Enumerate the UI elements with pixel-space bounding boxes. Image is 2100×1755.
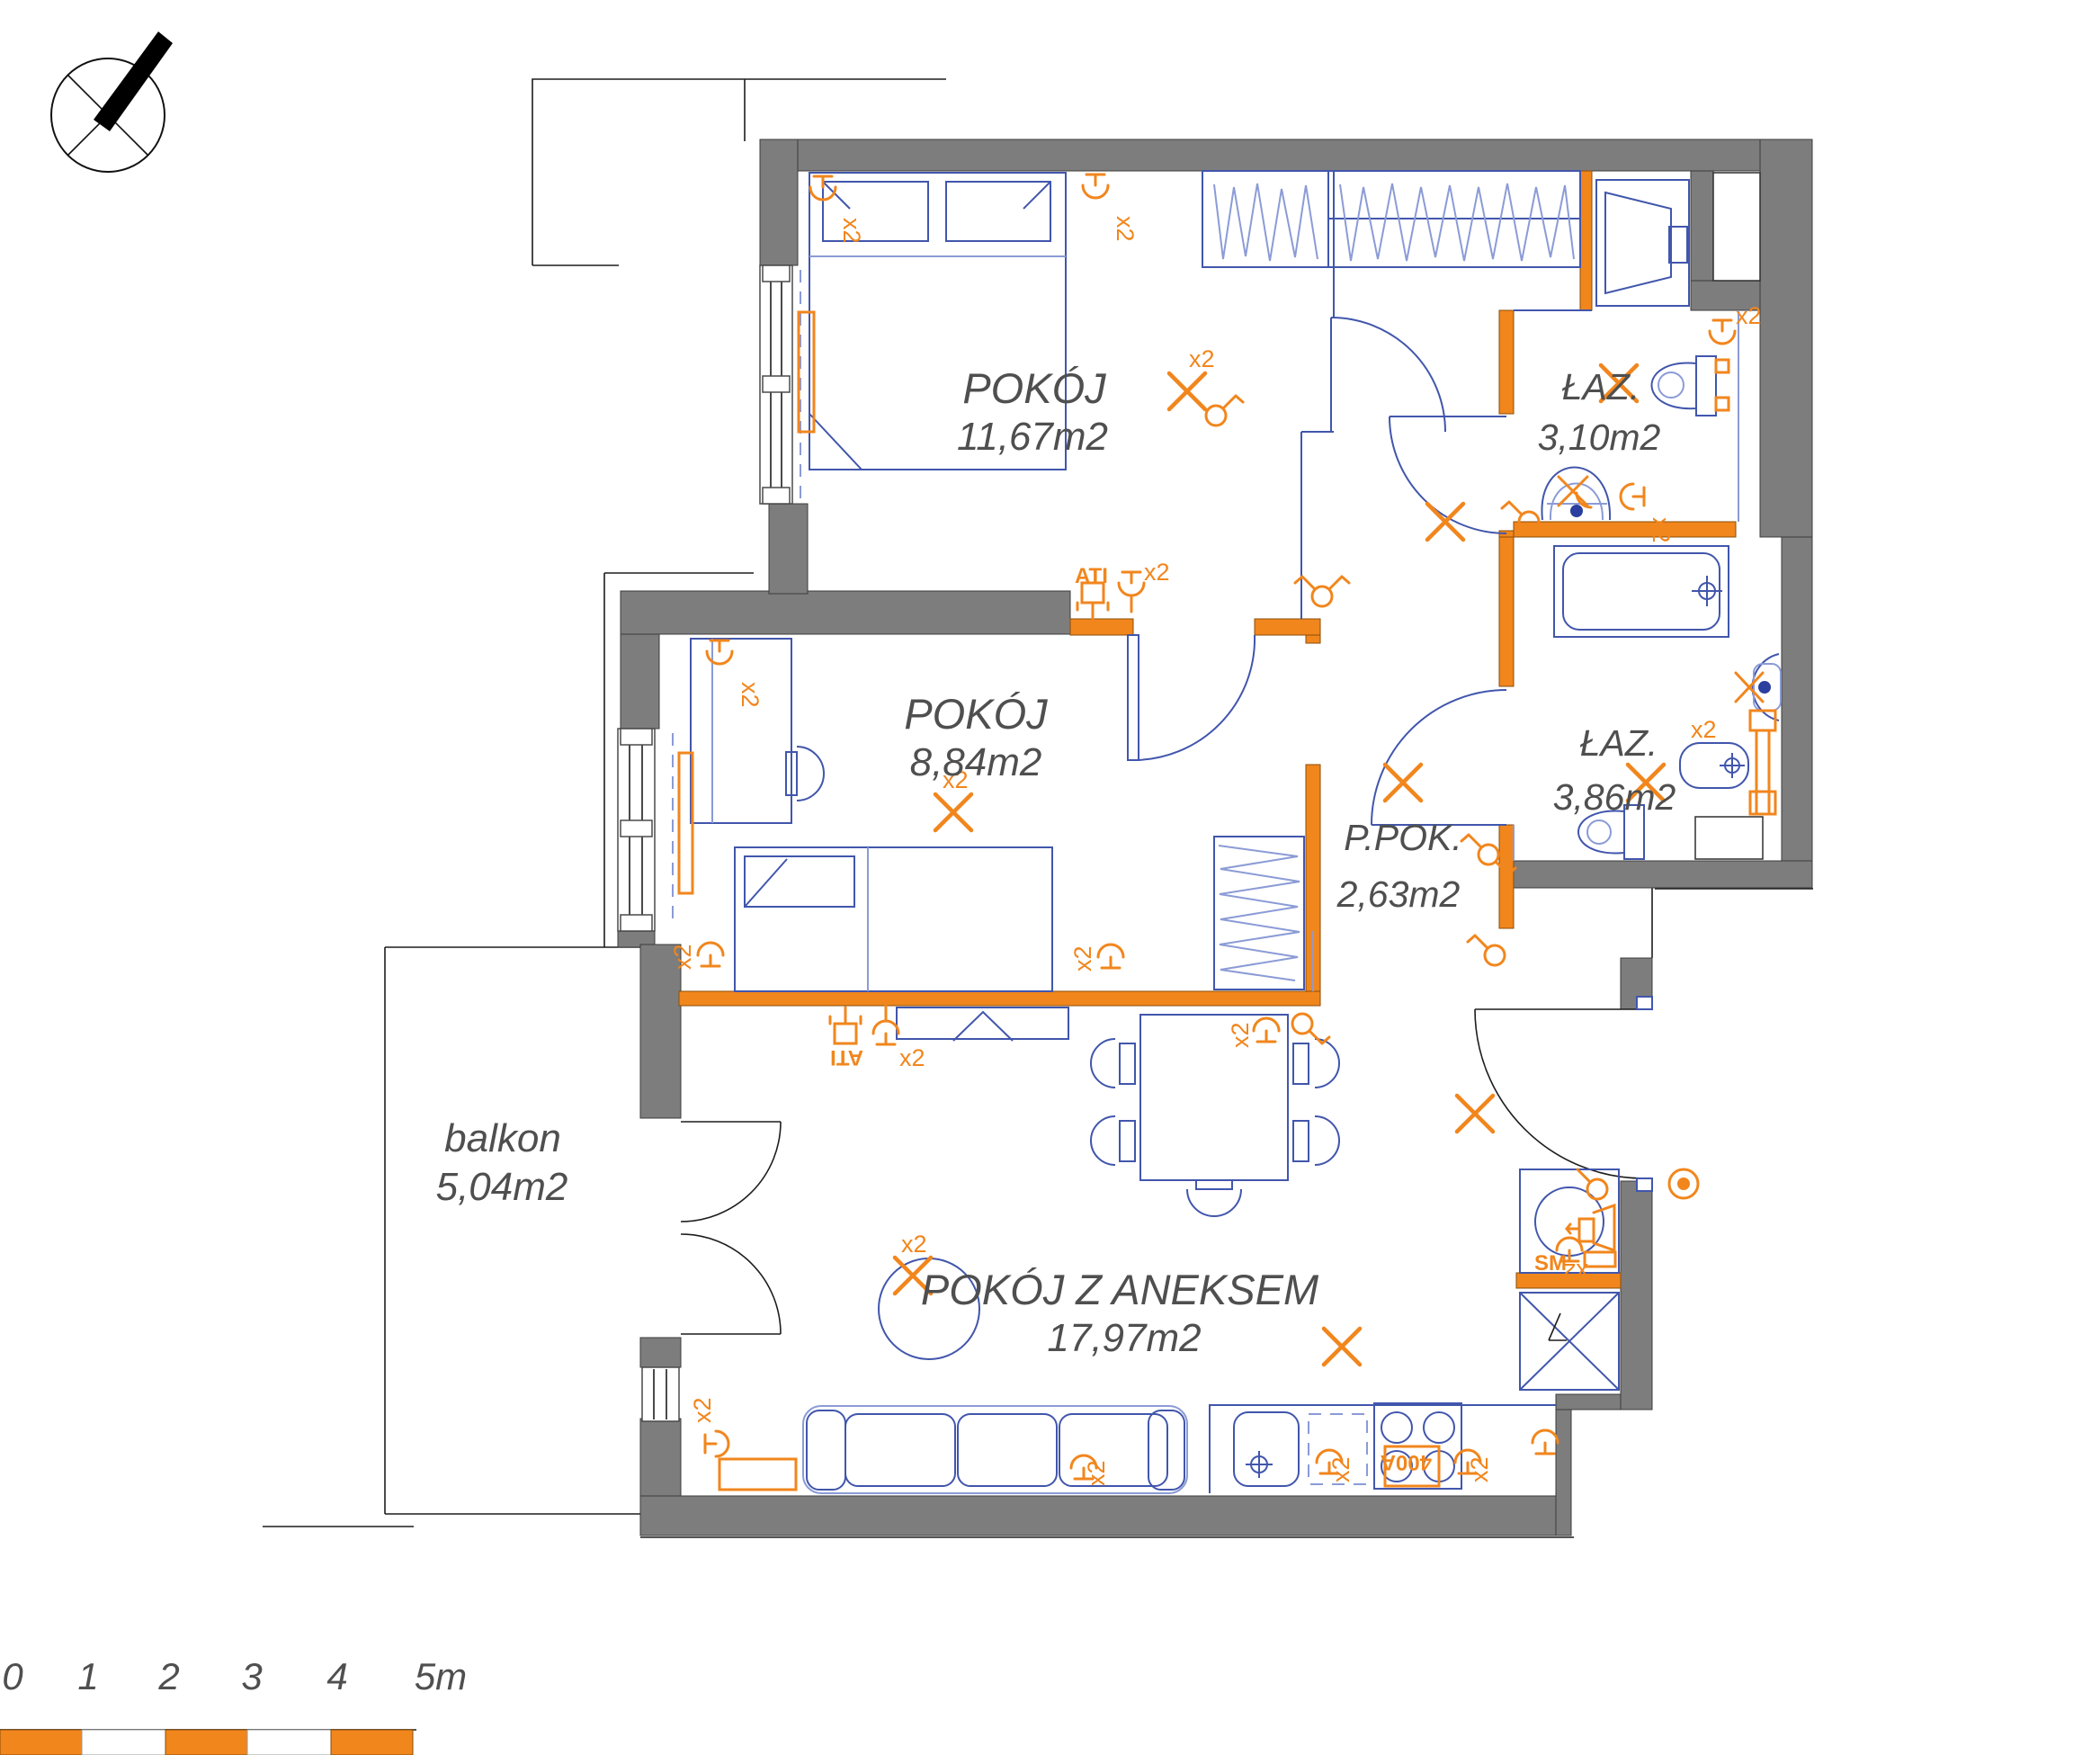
chair xyxy=(1293,1039,1339,1088)
pwall-room2-south xyxy=(679,991,1320,1006)
chair xyxy=(1091,1039,1135,1088)
x2-label: x2 xyxy=(1189,345,1215,372)
wall-lamp xyxy=(1710,320,1735,344)
x2-label: x2 xyxy=(901,1231,927,1258)
x2-label: x2 xyxy=(1227,1022,1254,1048)
wall-bottom xyxy=(640,1496,1571,1536)
tv-cabinet xyxy=(897,1007,1068,1041)
room-label-balkon-area: 5,04m2 xyxy=(436,1165,568,1209)
wall-lamp xyxy=(698,943,723,966)
switch xyxy=(1295,577,1349,606)
scale-label-2: 2 xyxy=(157,1655,179,1697)
window-room1-west xyxy=(760,265,800,504)
wall-lamp xyxy=(705,1431,728,1456)
bathtub xyxy=(1554,546,1729,637)
scale-label-1: 1 xyxy=(77,1655,98,1697)
x2-label: x2 xyxy=(737,682,764,708)
x2-label: x2 xyxy=(669,944,696,970)
pwall-bath-divider xyxy=(1514,522,1736,537)
ceiling-light xyxy=(1169,373,1205,409)
bidet-bath2 xyxy=(1680,743,1748,788)
windows xyxy=(618,265,800,1421)
socket xyxy=(1533,1430,1558,1454)
floor-plan-drawing: x2 x2 x2 x2 x2 x2 x2 x2 x2 x2 x2 x2 x2 x… xyxy=(0,0,2100,1755)
switch xyxy=(1292,1014,1329,1043)
room-label-balkon-name: balkon xyxy=(444,1116,561,1160)
wall-living-west-mid xyxy=(640,1338,681,1367)
room-label-pokoj1-area: 11,67m2 xyxy=(957,415,1108,459)
x2-label: x2 xyxy=(1083,1460,1110,1486)
north-needle xyxy=(94,31,173,131)
ceiling-light xyxy=(1457,1096,1493,1132)
radiator-living xyxy=(719,1459,796,1490)
wardrobe-hall xyxy=(1214,837,1304,989)
room-label-living-name: POKÓJ Z ANEKSEM xyxy=(921,1266,1319,1313)
wall-lamp xyxy=(1254,1018,1279,1042)
wardrobe-corridor xyxy=(1328,171,1580,267)
wall-pier-west1 xyxy=(769,504,808,594)
wall-se-step-v xyxy=(1556,1394,1571,1536)
chair xyxy=(1187,1180,1241,1216)
room-label-ppok-area: 2,63m2 xyxy=(1336,873,1461,915)
door-entrance xyxy=(1475,997,1652,1191)
x2-label: x2 xyxy=(1648,517,1675,543)
switch xyxy=(1468,936,1505,965)
door-room2 xyxy=(1128,635,1255,760)
wall-pier-west2 xyxy=(621,634,659,729)
pwall-room2-east-top xyxy=(1306,635,1320,643)
fridge xyxy=(1520,1293,1619,1390)
ati-label: ATI xyxy=(1075,564,1108,588)
room-label-laz2-name: ŁAZ. xyxy=(1580,722,1658,764)
walls-partition xyxy=(679,171,1736,1288)
x2-label: x2 xyxy=(689,1397,716,1423)
x2-label: x2 xyxy=(899,1044,925,1071)
x2-label: x2 xyxy=(1691,716,1717,743)
socket xyxy=(873,1005,898,1044)
room-label-ppok-name: P.POK. xyxy=(1344,817,1461,858)
room-label-laz1-name: ŁAZ. xyxy=(1562,366,1640,407)
socket xyxy=(1119,572,1144,612)
scale-seg-white xyxy=(247,1730,331,1755)
window-room2-west xyxy=(618,729,673,931)
ceiling-light xyxy=(1324,1329,1360,1365)
toilet-bath1 xyxy=(1652,356,1729,416)
ceiling-light xyxy=(1385,765,1421,801)
pwall-bath2-west-a xyxy=(1499,537,1514,686)
pwall-bath1-west xyxy=(1499,310,1514,414)
wall-lamp xyxy=(1621,484,1644,509)
room-label-pokoj2-name: POKÓJ xyxy=(904,690,1048,738)
x2-label: x2 xyxy=(1327,1456,1354,1482)
svg-text:400A: 400A xyxy=(1381,1450,1432,1474)
desk-room2 xyxy=(691,639,824,823)
scale-seg-white xyxy=(82,1730,165,1755)
ceiling-light xyxy=(935,794,971,830)
floor-plan-page: x2 x2 x2 x2 x2 x2 x2 x2 x2 x2 x2 x2 x2 x… xyxy=(0,0,2100,1755)
sm-indicator xyxy=(1585,1252,1615,1267)
x2-label: x2 xyxy=(1466,1456,1493,1482)
scale-seg-orange xyxy=(0,1730,82,1755)
pwall-bath1-stub xyxy=(1580,171,1592,310)
wall-right-mid xyxy=(1782,537,1812,888)
scale-seg-orange xyxy=(165,1730,247,1755)
wall-top xyxy=(760,139,1812,171)
x2-label: x2 xyxy=(1736,302,1762,329)
x2-label: x2 xyxy=(838,218,865,244)
wall-bath2-bottom xyxy=(1514,861,1812,888)
room-label-laz2-area: 3,86m2 xyxy=(1553,776,1676,818)
room-label-pokoj2-area: 8,84m2 xyxy=(910,740,1042,784)
scale-labels: 0 1 2 3 4 5m xyxy=(2,1655,467,1697)
ati-label: ATI xyxy=(830,1045,863,1070)
room-label-pokoj1-name: POKÓJ xyxy=(962,364,1106,412)
scale-label-4: 4 xyxy=(326,1655,347,1697)
pwall-room2-top-b xyxy=(1255,619,1320,635)
ati-box xyxy=(830,1007,861,1043)
door-bath2 xyxy=(1372,690,1506,825)
wall-pier-topleft xyxy=(760,139,798,265)
intercom-speaker xyxy=(1567,1205,1614,1250)
scale-label-0: 0 xyxy=(2,1655,23,1697)
chair xyxy=(1091,1116,1135,1165)
x2-label: x2 xyxy=(1144,559,1170,586)
pwall-room2-top-a xyxy=(1070,619,1133,635)
scale-seg-orange xyxy=(331,1730,413,1755)
kitchen-counter xyxy=(1210,1403,1556,1493)
doorbell xyxy=(1669,1169,1698,1198)
sofa xyxy=(803,1406,1187,1493)
north-arrow xyxy=(51,31,173,172)
x2-label: x2 xyxy=(1069,945,1096,972)
bed-single xyxy=(735,847,1052,991)
wall-mid-top xyxy=(621,591,1070,634)
door-bath1 xyxy=(1390,416,1506,533)
scale-label-5m: 5m xyxy=(415,1655,467,1697)
radiators xyxy=(679,312,814,1490)
wall-entry-south xyxy=(1621,1181,1652,1410)
wall-lamp xyxy=(1083,175,1108,198)
washbasin-bath1 xyxy=(1541,468,1610,521)
kitchen-sink xyxy=(1234,1412,1299,1486)
ati-box xyxy=(1077,583,1108,619)
radiator-room1 xyxy=(799,312,814,432)
room-label-laz1-area: 3,10m2 xyxy=(1538,416,1661,458)
scale-label-3: 3 xyxy=(241,1655,262,1697)
shower xyxy=(1596,180,1689,306)
scale-bar: 0 1 2 3 4 5m xyxy=(0,1655,467,1755)
wall-lamp xyxy=(1098,945,1123,968)
shaft-niche-bath2 xyxy=(1695,817,1763,859)
switch xyxy=(1206,396,1243,425)
pwall-bath2-west-b xyxy=(1499,825,1514,928)
x2-label: x2 xyxy=(1112,216,1139,242)
window-living-west xyxy=(642,1367,679,1421)
shaft-niche-top xyxy=(1713,173,1760,281)
ceiling-light xyxy=(1427,504,1463,540)
wall-lamp xyxy=(707,640,732,664)
door-room1 xyxy=(1331,318,1445,432)
plumbing-orange xyxy=(1750,711,1775,814)
sm-label: SM xyxy=(1534,1251,1567,1276)
chair xyxy=(1293,1116,1339,1165)
room-label-living-area: 17,97m2 xyxy=(1047,1316,1201,1360)
dining-table xyxy=(1091,1015,1339,1216)
wall-right-upper xyxy=(1760,139,1812,537)
door-balcony-double xyxy=(681,1122,781,1334)
wardrobe-room1 xyxy=(1202,171,1328,267)
